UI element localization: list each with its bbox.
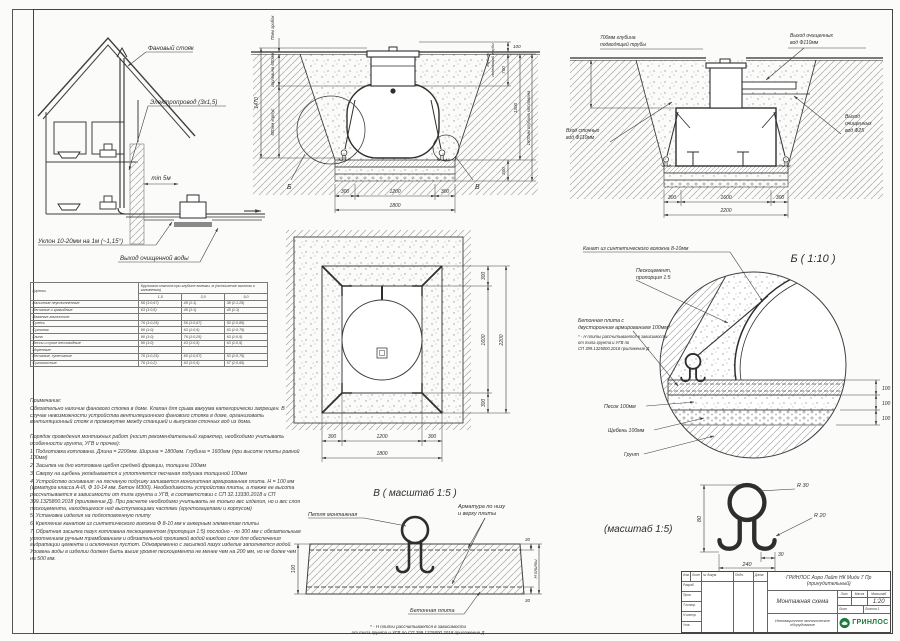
installation-notes: Примечание: Обязательно наличие фанового… (30, 398, 302, 564)
dim-b1800: 1800 (389, 203, 400, 209)
notes-step: 1. Подготовка котлована. Длина = 2200мм.… (30, 449, 302, 463)
loop-label: Петля монтажная (308, 512, 357, 518)
hatch-square (377, 348, 387, 358)
outlet25-label1: Выход (845, 114, 860, 120)
dim-b1200: 1200 (389, 189, 400, 195)
fixtures (58, 144, 116, 210)
slope-label: Уклон 10-20мм на 1м (~1,15°) (37, 238, 123, 245)
table-row: Лессы и сухие лессовидные90 (1:0)63 (1:0… (31, 340, 268, 347)
outlet110-label2: вод Ф110мм (790, 40, 819, 46)
dim-b1800: 1800 (376, 451, 387, 457)
dim-300r: 300 (776, 195, 785, 201)
rebar-label1: Арматура по низу (457, 504, 506, 510)
row-nkontr: Н.контр. (682, 612, 702, 622)
clean-water-outlet-label: Выход очищенной воды (120, 255, 189, 262)
table-row: Моренные: (31, 347, 268, 354)
notes-step: 6. Крепление канатом из синтетического в… (30, 521, 302, 528)
callout-v: В (475, 184, 480, 191)
col-list: Лист (691, 572, 702, 582)
soil-slope-table: Грунты Крутизна откосов при глубине выем… (30, 282, 268, 367)
dim-240: 240 (741, 562, 752, 568)
detail-v: В ( масштаб 1:5 ) Петля монтажная Армату… (290, 482, 545, 639)
table-header-line1: Крутизна откосов при глубине выемки, м (141, 284, 214, 288)
dim-b300r: 300 (441, 189, 450, 195)
callout-b: Б (287, 184, 292, 191)
soil-label: Грунт (624, 452, 640, 458)
gravel-label: Щебень 100мм (608, 428, 645, 434)
sheet-label: Лист (838, 606, 864, 614)
table-row: Влажные глинистые: (31, 314, 268, 321)
sand-layer (668, 395, 878, 410)
lit-label: Лит. (838, 591, 852, 598)
dim-100b: 100 (882, 401, 891, 407)
plan-view: 300 1600 300 2200 300 1200 300 1800 (276, 222, 546, 484)
dim-neck: горловина 600мм (270, 53, 275, 87)
dim-100: 100 (291, 565, 297, 574)
sheets-label-text: Листов (865, 607, 877, 611)
row-tkontr: Т.контр. (682, 602, 702, 612)
detail-v-title: В ( масштаб 1:5 ) (373, 487, 456, 499)
inlet110-label1: Вход сточных (566, 128, 600, 134)
table-header: Крутизна откосов при глубине выемки, м (… (139, 283, 268, 294)
notes-step: 5. Установка изделия на подготовленную п… (30, 513, 302, 520)
notes-step: 4. Устройство основания: на песчаную под… (30, 479, 302, 513)
pipe-depth-line1: глубина (486, 53, 490, 67)
table-row: Песчаные, супесчаные76 (1:0,25)60 (1:0,5… (31, 353, 268, 360)
brand-name: ГРИНЛОС (852, 619, 888, 626)
sheet-label-text: Лист (839, 607, 847, 611)
dim-30: 30 (778, 552, 784, 558)
gravel-layer (335, 174, 455, 181)
dim-100a: 100 (882, 386, 891, 392)
grinlos-logo-icon (839, 617, 850, 629)
slab-label: Бетонная плита (410, 608, 455, 614)
depth-50: 5,0 (225, 294, 268, 301)
title-block: Изм. Лист № докум. Подп. Дата Разраб. Пр… (681, 571, 891, 633)
detail-b-title: Б ( 1:10 ) (790, 253, 835, 265)
col-izm: Изм. (682, 572, 691, 582)
pipe-depth-line2: подводящей трубы (491, 43, 495, 76)
col-doc: № докум. (702, 572, 734, 582)
drawing-name: Монтажная схема (768, 591, 838, 614)
notes-order-title: Порядок проведения монтажных работ (носи… (30, 434, 302, 448)
table-row: Супесь76 (1:0,25)56 (1:0,67)50 (1:0,85) (31, 320, 268, 327)
section-side-view: 700мм глубина подводящей трубы Выход очи… (558, 8, 893, 223)
dim-2200: 2200 (719, 208, 731, 214)
depth-30: 3,0 (182, 294, 225, 301)
dim-r300b: 300 (481, 399, 487, 408)
dim-b300l: 300 (328, 434, 337, 440)
gravel-layer (668, 410, 878, 425)
outlet25-label3: вод Ф25 (845, 128, 864, 134)
notes-step: 7. Обратная засыпка пазух котлована песк… (30, 529, 302, 563)
row-razrab: Разраб. (682, 582, 702, 592)
brand-logo: ГРИНЛОС (838, 614, 890, 632)
dim-pit-depth: 1600мм глубина котлована (526, 90, 531, 145)
pipe-depth-label1: 700мм глубина (600, 35, 636, 41)
dim-1300: 1300 (513, 102, 518, 113)
dim-100: 100 (513, 44, 521, 49)
table-row: Песчаные и гравийные63 (1:0,5)45 (1:1)45… (31, 307, 268, 314)
dim-r1600: 1600 (481, 334, 487, 345)
dim-300l: 300 (668, 195, 677, 201)
slab-label1: Бетонная плита с (578, 318, 624, 324)
scale-label: Масштаб (868, 591, 890, 598)
dim-lid: 70мм грибок (270, 15, 275, 41)
sand-layer (335, 167, 455, 174)
dim-r300t: 300 (481, 272, 487, 281)
min5-dimension: min 5м (144, 175, 178, 184)
rope-label: Канат из синтетического волокна 8-10мм (583, 246, 689, 252)
dim-1600: 1600 (720, 195, 731, 201)
table-row: Насыпные неуплотненные56 (1:0,67)45 (1:1… (31, 300, 268, 307)
inlet110-label2: вод Ф110мм (566, 135, 595, 141)
table-row: Суглинистые76 (1:0,2)63 (1:0,5)57 (1:0,6… (31, 360, 268, 367)
dim-b1200: 1200 (376, 434, 387, 440)
document-name: ГРИНЛОС Аэро Лайт НК Миди 7 Пр (принудит… (768, 572, 890, 591)
notes-title: Примечание: (30, 398, 302, 405)
dim-300: 300 (501, 167, 506, 175)
slab-footnote1: * - Н плиты рассчитывается в зависимости (578, 334, 668, 339)
col-sign: Подп. (734, 572, 754, 582)
dim-b300l: 300 (341, 189, 350, 195)
row-prov: Пров. (682, 592, 702, 602)
slab-footnote2: от типа грунта и УГВ по (578, 340, 630, 345)
house-connection-view: min 5м Фановый стояк Электропровод (3х1,… (30, 24, 265, 269)
pipe-depth-label2: подводящей трубы (600, 41, 646, 48)
outlet25-label2: очищенных (845, 121, 872, 127)
dim-30-top: 30 (525, 537, 531, 542)
sand-layer (664, 173, 788, 180)
sandcement-label1: Пескоцемент, (636, 268, 671, 274)
concrete-slab (664, 166, 788, 173)
dim-r2200: 2200 (499, 334, 505, 346)
dim-100c: 100 (882, 416, 891, 422)
dim-h-plate: Н плиты (533, 559, 538, 579)
electric-label: Электропровод (3х1,5) (150, 99, 217, 106)
notes-paragraph: Обязательно наличие фанового стояка в до… (30, 406, 302, 426)
footnote1: * - Н плиты рассчитывается в зависимости (370, 624, 466, 629)
detail-b: Б ( 1:10 ) Канат из синтетического волок… (578, 230, 898, 475)
depth-15: 1,5 (139, 294, 182, 301)
notes-step: 3. Сверху на щебень укладывается и уплот… (30, 471, 302, 478)
slab-footnote3: СП 399.1325800.2018 приложение Д (578, 346, 649, 351)
dim-30-bottom: 30 (525, 598, 531, 603)
notes-step: 2. Засыпка на дно котлована щебня средне… (30, 463, 302, 470)
dim-r30: R 30 (797, 483, 810, 489)
dim-80: 80 (697, 515, 703, 522)
tank-top-circle (342, 300, 422, 380)
dim-total-height: 1470 (254, 97, 260, 109)
col-date: Дата (754, 572, 768, 582)
slab-label2: двусторонним армированием 100мм* (578, 325, 671, 331)
dim-700: 700 (501, 66, 506, 74)
dim-r20: R 20 (814, 513, 827, 519)
section-front-view: Б В 70мм грибок горловина 600мм 800мм ко… (243, 8, 548, 226)
gravel-layer (664, 180, 788, 187)
loop-detail: (масштаб 1:5) R 30 R 20 80 30 240 (592, 474, 867, 574)
vent-stack-label: Фановый стояк (148, 45, 195, 52)
mass-label: Масса (852, 591, 868, 598)
mounting-loop-shape (719, 485, 774, 549)
min5-label: min 5м (151, 175, 171, 182)
outlet110-label1: Выход очищенных (790, 33, 834, 39)
scale-value: 1:20 (868, 598, 890, 606)
dim-b300r: 300 (428, 434, 437, 440)
sand-label: Песок 100мм (604, 404, 636, 410)
concrete-slab (668, 380, 878, 395)
table-col-soils: Грунты (31, 283, 139, 301)
soil-below (638, 425, 888, 475)
sheets-label: Листов 1 (864, 606, 890, 614)
table-row: Суглинок90 (1:0)63 (1:0,5)53 (1:0,75) (31, 327, 268, 334)
row-utv: Утв. (682, 622, 702, 632)
drawing-sheet: { "house": { "vent": "Фановый стояк", "e… (0, 0, 900, 641)
sandcement-label2: пропорция 1:5 (636, 275, 671, 281)
table-row: Глина90 (1:0)76 (1:0,25)63 (1:0,5) (31, 334, 268, 341)
loop-detail-title: (масштаб 1:5) (604, 523, 672, 535)
dim-body: 800мм корпус (270, 108, 275, 136)
concrete-slab (335, 160, 455, 167)
sheets-value: 1 (878, 607, 880, 611)
rebar-label2: и верху плиты (458, 511, 496, 517)
company-line: Инновационное экологическое оборудование (768, 614, 838, 632)
footnote2: от типа грунта и УГВ по СП 399.1325800.2… (352, 630, 486, 635)
